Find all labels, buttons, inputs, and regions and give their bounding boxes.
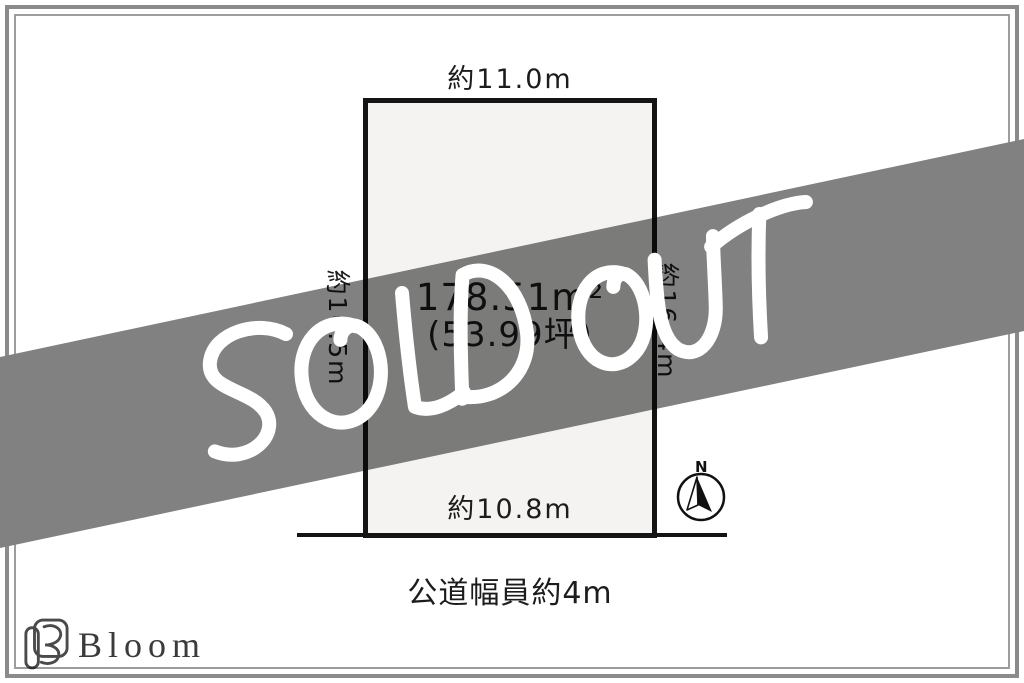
compass-icon: N <box>668 452 738 530</box>
brand-logo: Bloom <box>23 617 206 671</box>
area-tsubo: (53.99坪) <box>363 318 657 354</box>
area-square-meters: 178.51m² <box>363 279 657 318</box>
dimension-left: 約16.5m <box>321 266 357 390</box>
brand-name: Bloom <box>78 624 206 666</box>
land-plot-diagram: 約10.8m 約11.0m 約16.5m 約16.4m 178.51m² (53… <box>0 0 1024 683</box>
sold-land-flyer: { "banner": { "text": "SOLD OUT", "band_… <box>0 0 1024 683</box>
area-block: 178.51m² (53.99坪) <box>363 279 657 354</box>
dimension-top: 約11.0m <box>363 57 657 96</box>
dimension-bottom: 約10.8m <box>368 487 652 526</box>
road-width-label: 公道幅員約4m <box>343 568 677 612</box>
bloom-logo-icon <box>23 617 69 671</box>
